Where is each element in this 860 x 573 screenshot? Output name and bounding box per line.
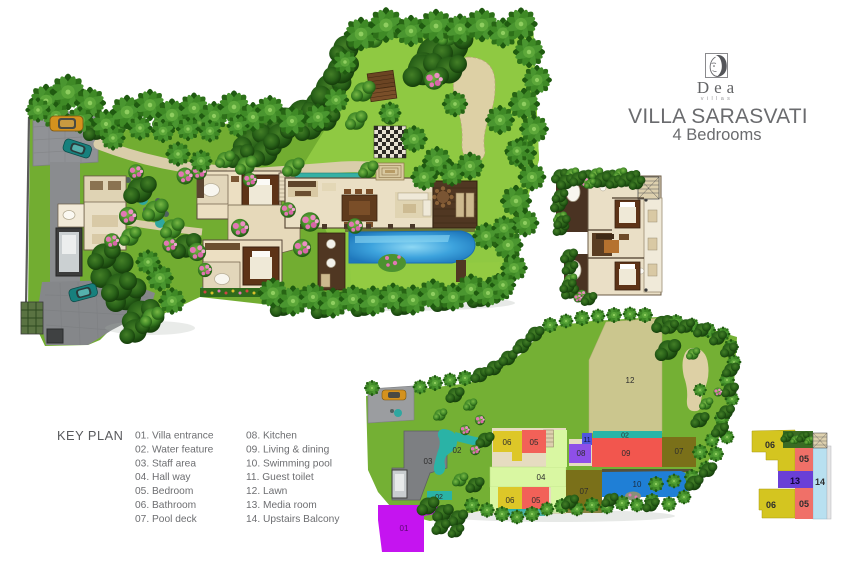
svg-text:12. Lawn: 12. Lawn bbox=[246, 486, 287, 497]
svg-text:Dea: Dea bbox=[697, 78, 739, 97]
svg-text:08. Kitchen: 08. Kitchen bbox=[246, 431, 297, 442]
svg-text:10: 10 bbox=[633, 480, 642, 489]
svg-text:villas: villas bbox=[701, 96, 734, 102]
svg-text:13. Media room: 13. Media room bbox=[246, 500, 317, 511]
svg-text:03: 03 bbox=[424, 457, 433, 466]
svg-text:14. Upstairs Balcony: 14. Upstairs Balcony bbox=[246, 514, 340, 525]
svg-text:06: 06 bbox=[503, 438, 512, 447]
svg-text:07: 07 bbox=[675, 447, 684, 456]
svg-text:02: 02 bbox=[621, 433, 629, 440]
svg-text:07. Pool deck: 07. Pool deck bbox=[135, 514, 198, 525]
svg-text:12: 12 bbox=[626, 376, 635, 385]
svg-text:03. Staff area: 03. Staff area bbox=[135, 458, 196, 469]
svg-text:05: 05 bbox=[799, 499, 809, 509]
svg-text:08: 08 bbox=[577, 449, 586, 458]
svg-text:04: 04 bbox=[537, 473, 546, 482]
svg-text:06: 06 bbox=[506, 496, 515, 505]
svg-text:06: 06 bbox=[765, 440, 775, 450]
svg-text:4 Bedrooms: 4 Bedrooms bbox=[673, 126, 762, 144]
svg-text:10. Swimming pool: 10. Swimming pool bbox=[246, 458, 332, 469]
svg-text:09. Living & dining: 09. Living & dining bbox=[246, 444, 330, 455]
svg-text:13: 13 bbox=[790, 476, 800, 486]
svg-text:VILLA SARASVATI: VILLA SARASVATI bbox=[628, 105, 808, 128]
svg-text:02. Water feature: 02. Water feature bbox=[135, 444, 214, 455]
svg-text:09: 09 bbox=[622, 449, 631, 458]
svg-text:06. Bathroom: 06. Bathroom bbox=[135, 500, 196, 511]
svg-text:06: 06 bbox=[766, 500, 776, 510]
svg-text:04. Hall way: 04. Hall way bbox=[135, 472, 191, 483]
svg-text:11: 11 bbox=[583, 437, 590, 444]
svg-text:05: 05 bbox=[532, 496, 541, 505]
svg-text:07: 07 bbox=[580, 487, 589, 496]
svg-text:01: 01 bbox=[400, 524, 409, 533]
svg-text:14: 14 bbox=[815, 477, 825, 487]
svg-text:05: 05 bbox=[799, 454, 809, 464]
svg-text:01. Villa entrance: 01. Villa entrance bbox=[135, 431, 214, 442]
svg-text:05: 05 bbox=[530, 438, 539, 447]
svg-text:11. Guest toilet: 11. Guest toilet bbox=[246, 472, 314, 483]
svg-text:02: 02 bbox=[453, 446, 462, 455]
svg-text:KEY PLAN: KEY PLAN bbox=[57, 428, 123, 443]
svg-text:05. Bedroom: 05. Bedroom bbox=[135, 486, 193, 497]
